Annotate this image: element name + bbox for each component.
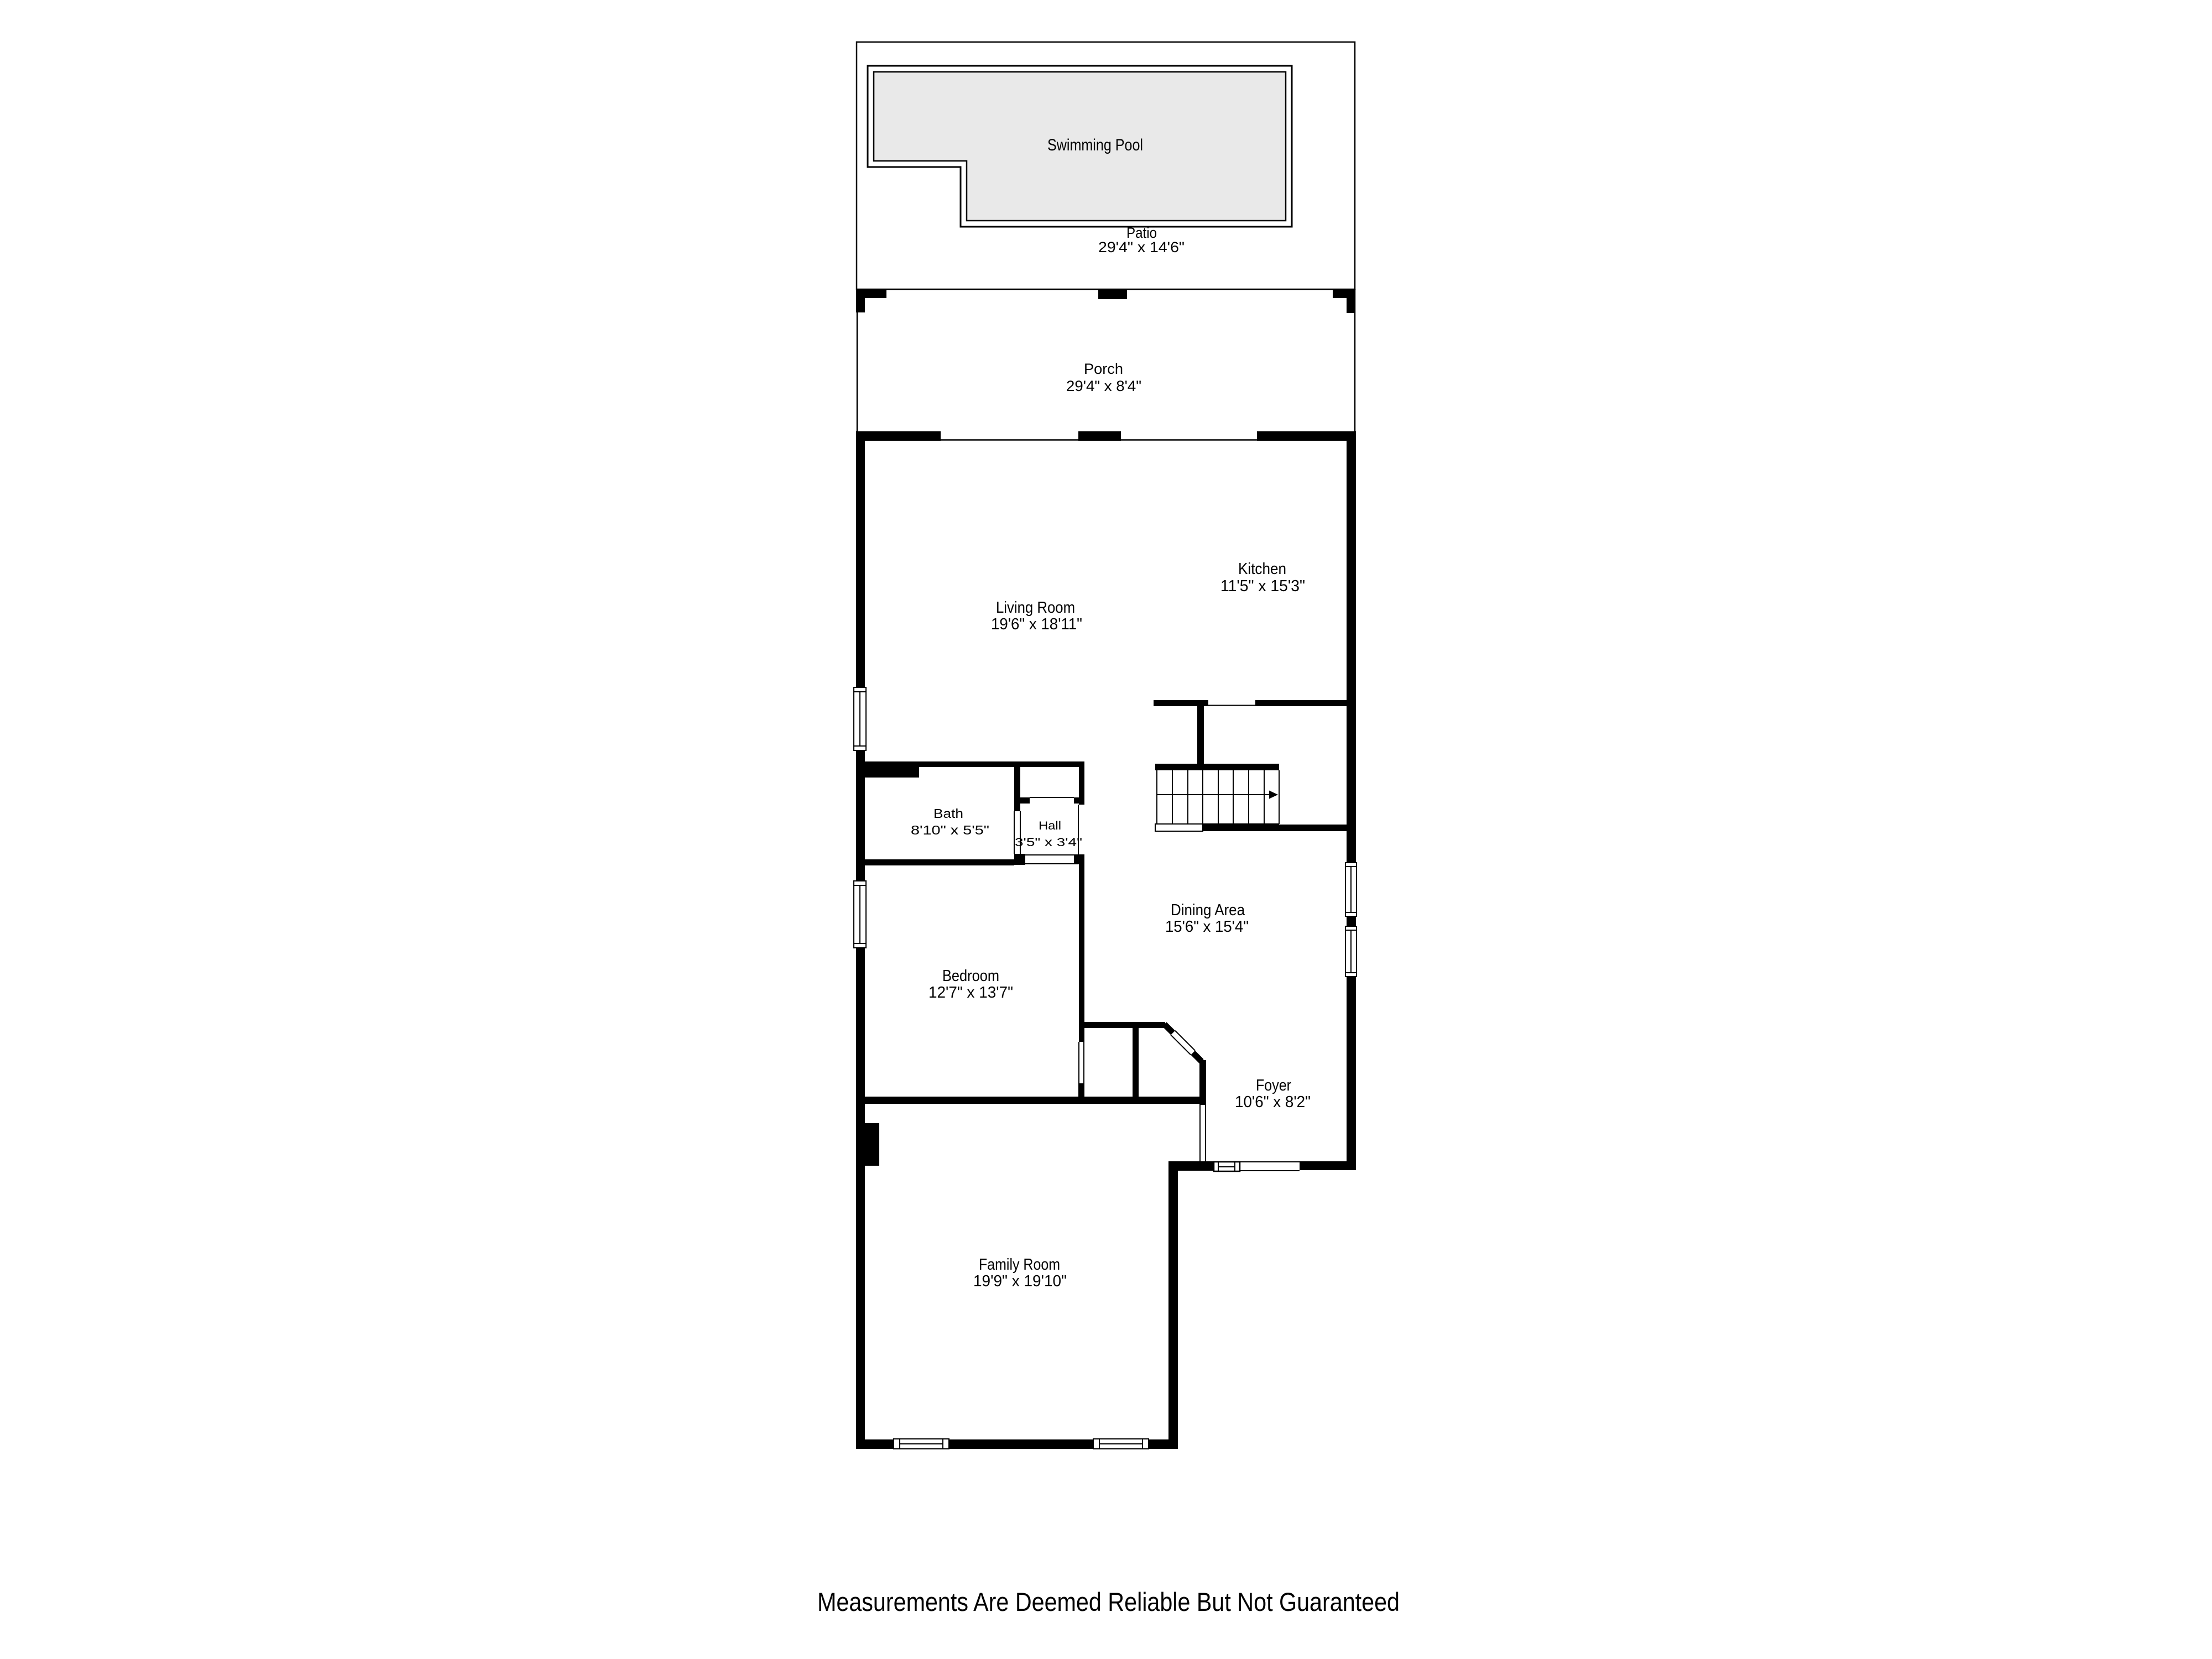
svg-text:19'9" x 19'10": 19'9" x 19'10" [973, 1272, 1067, 1290]
svg-text:8'10" x 5'5": 8'10" x 5'5" [911, 823, 989, 837]
svg-text:Family Room: Family Room [979, 1256, 1060, 1274]
svg-text:19'6" x 18'11": 19'6" x 18'11" [991, 615, 1082, 633]
svg-text:29'4" x 8'4": 29'4" x 8'4" [1066, 378, 1141, 394]
svg-text:Kitchen: Kitchen [1238, 560, 1286, 578]
svg-text:10'6" x 8'2": 10'6" x 8'2" [1235, 1093, 1311, 1111]
svg-text:Hall: Hall [1039, 820, 1061, 832]
svg-text:12'7" x 13'7": 12'7" x 13'7" [928, 984, 1013, 1001]
svg-text:Swimming Pool: Swimming Pool [1047, 136, 1143, 154]
svg-text:Porch: Porch [1084, 361, 1123, 377]
svg-text:Foyer: Foyer [1256, 1077, 1291, 1094]
svg-text:Bath: Bath [933, 806, 963, 821]
svg-text:Living Room: Living Room [996, 599, 1075, 617]
svg-text:Measurements Are Deemed Reliab: Measurements Are Deemed Reliable But Not… [817, 1587, 1400, 1616]
svg-text:11'5" x 15'3": 11'5" x 15'3" [1220, 577, 1305, 595]
svg-text:Bedroom: Bedroom [942, 967, 999, 985]
svg-text:29'4" x 14'6": 29'4" x 14'6" [1098, 239, 1185, 255]
svg-text:Dining Area: Dining Area [1171, 901, 1245, 919]
svg-text:3'5" x 3'4": 3'5" x 3'4" [1015, 836, 1082, 849]
svg-text:15'6" x 15'4": 15'6" x 15'4" [1165, 918, 1249, 936]
